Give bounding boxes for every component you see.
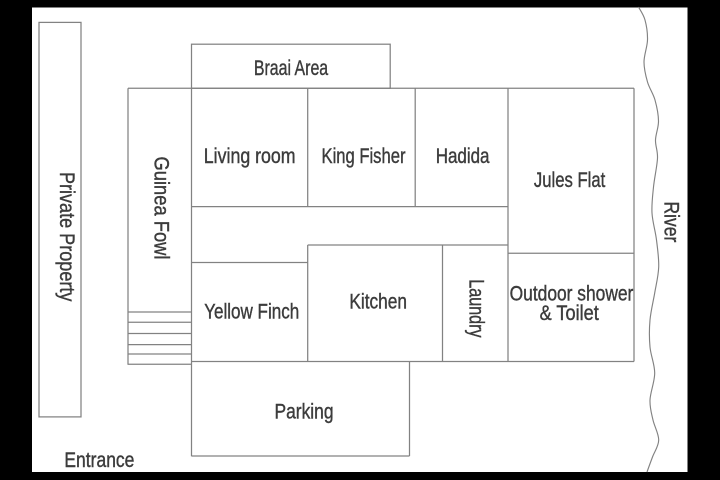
svg-text:Braai Area: Braai Area <box>254 57 329 80</box>
svg-text:Kitchen: Kitchen <box>349 291 407 314</box>
svg-text:Hadida: Hadida <box>436 145 490 168</box>
svg-text:Parking: Parking <box>274 401 333 424</box>
svg-text:Guinea Fowl: Guinea Fowl <box>150 157 173 260</box>
svg-text:Yellow Finch: Yellow Finch <box>204 300 299 323</box>
svg-text:& Toilet: & Toilet <box>540 302 599 325</box>
svg-text:Laundry: Laundry <box>465 279 488 338</box>
svg-text:River: River <box>660 202 683 243</box>
svg-text:Private Property: Private Property <box>55 172 78 302</box>
svg-text:King Fisher: King Fisher <box>322 145 406 168</box>
svg-text:Jules Flat: Jules Flat <box>534 169 606 192</box>
svg-text:Entrance: Entrance <box>64 449 134 472</box>
svg-text:Living room: Living room <box>204 145 296 168</box>
